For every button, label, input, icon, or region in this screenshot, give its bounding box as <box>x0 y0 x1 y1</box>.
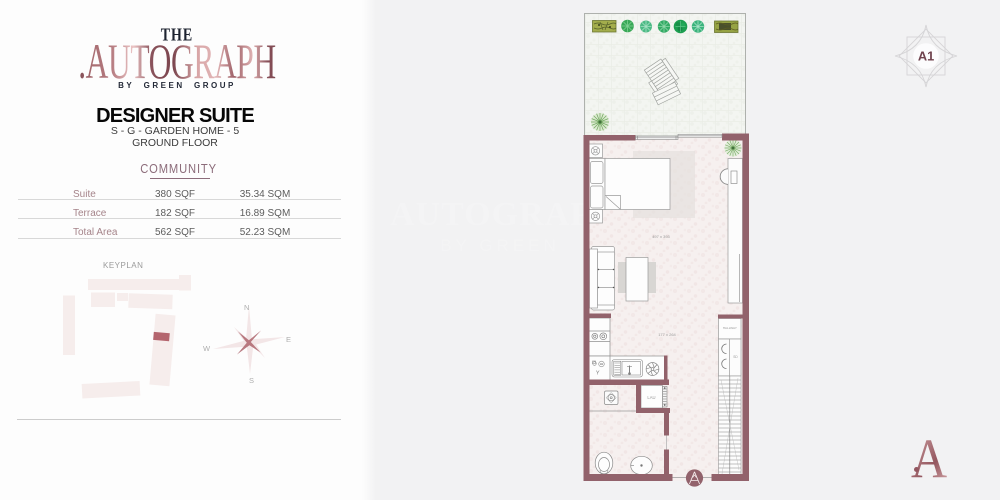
svg-text:177 x 264: 177 x 264 <box>658 332 676 337</box>
svg-text:SD: SD <box>733 355 738 359</box>
svg-text:S: S <box>249 376 254 385</box>
svg-text:N: N <box>244 303 249 312</box>
svg-text:497 x 393: 497 x 393 <box>652 234 670 239</box>
svg-text:A1: A1 <box>918 49 934 64</box>
svg-text:W: W <box>203 344 211 353</box>
svg-text:HALLWAY: HALLWAY <box>723 326 737 330</box>
svg-text:LAU: LAU <box>647 395 655 400</box>
svg-text:E: E <box>286 335 291 344</box>
